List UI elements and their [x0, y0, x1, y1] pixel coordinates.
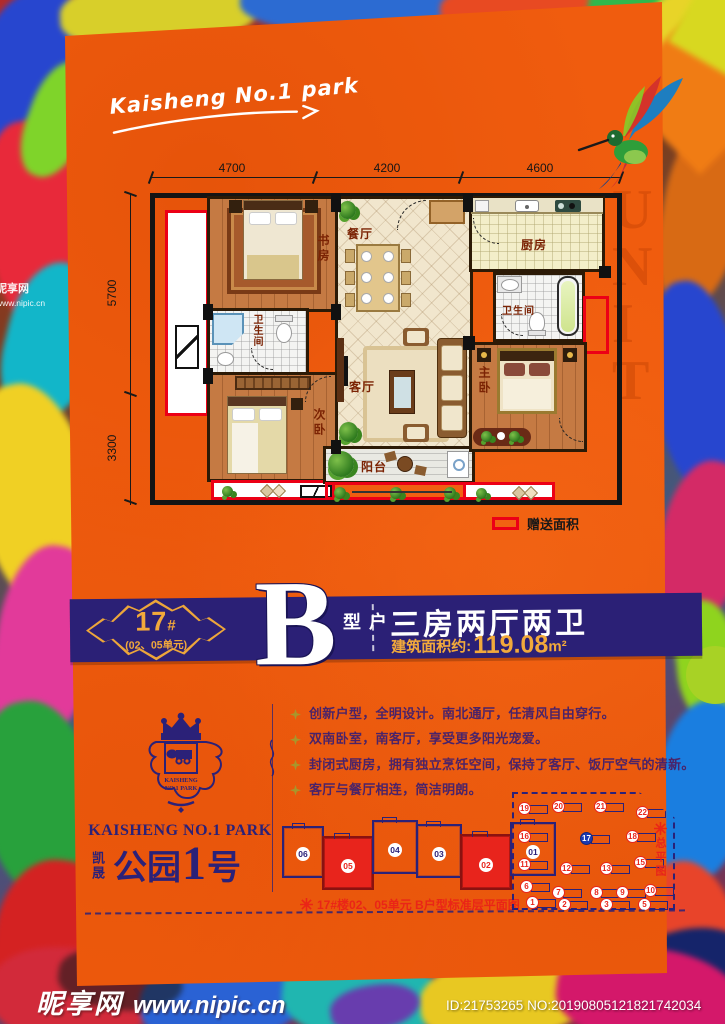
blanket	[247, 255, 299, 279]
hummingbird-icon	[573, 60, 691, 192]
sofa	[437, 338, 467, 438]
site-building-9: 9	[616, 886, 629, 899]
site-building-outline	[529, 833, 548, 842]
unit-number: 03	[432, 847, 446, 861]
coffee-table	[389, 370, 415, 414]
nightstand	[305, 200, 318, 213]
toilet-tank	[528, 330, 546, 336]
room-study: 书房	[209, 198, 337, 310]
plant	[390, 487, 402, 499]
bottom-watermark: 昵享网 www.nipic.cn	[36, 982, 285, 1021]
unit-banner: 17# (02、05单元) B 户型 三房两厅两卫 建筑面积约: 119.08 …	[70, 593, 703, 663]
toilet-tank	[275, 315, 293, 322]
room-label-study: 书房	[315, 234, 332, 264]
gift-bay-master	[463, 482, 555, 500]
room-label-balcony: 阳台	[361, 458, 387, 475]
dashed-cut-line	[85, 909, 685, 914]
door-arc	[559, 418, 583, 442]
door-arc	[501, 314, 523, 336]
nightstand	[291, 398, 303, 410]
watermark-site-name: 昵享网	[36, 982, 123, 1021]
dim-left-1: 5700	[105, 280, 119, 307]
feature-item: 双南卧室，南客厅，享受更多阳光宠爱。	[288, 731, 708, 747]
balcony-table	[397, 456, 413, 472]
ornament-frame-icon: 17# (02、05单元)	[86, 599, 227, 661]
kitchen-sink	[515, 200, 539, 212]
type-letter: B	[254, 557, 337, 692]
site-plan-label-text: 总平图	[652, 837, 668, 879]
block-number: 17	[135, 606, 167, 636]
site-building-8: 8	[590, 886, 603, 899]
side-watermark: 昵享网 www.nipic.cn	[0, 282, 45, 311]
site-building-10: 10	[644, 884, 657, 897]
dim-top-2: 4200	[374, 161, 401, 175]
site-building-outline	[569, 901, 588, 910]
site-plan-map: 19202122161718111213156789101235	[512, 792, 675, 910]
duvet-fold	[232, 423, 258, 473]
floor-plate-unit-05: 05	[322, 836, 374, 890]
plant	[444, 487, 456, 499]
flower-icon	[654, 822, 667, 835]
unit-note: (02、05单元)	[125, 637, 187, 653]
gift-area-right	[583, 296, 609, 354]
site-building-22: 22	[636, 806, 649, 819]
nightstand	[477, 348, 491, 362]
gift-bay-second-bedroom	[211, 480, 335, 500]
plant	[476, 488, 487, 499]
site-building-1: 1	[526, 896, 539, 909]
room-label-bath-left: 卫生间	[249, 314, 264, 347]
brand-cn-word: 公园	[113, 851, 181, 885]
site-building-outline	[611, 865, 630, 874]
floor-plate-unit-02: 02	[460, 834, 512, 890]
dim-top-1: 4700	[219, 161, 246, 175]
poster-canvas: Kaisheng No.1 park UNIT 4700 420	[0, 0, 725, 1024]
site-building-outline	[605, 803, 624, 812]
fridge	[475, 200, 489, 212]
bed	[243, 200, 303, 280]
crest-text-1: KAISHENG	[164, 777, 198, 784]
room-bath-left: 卫生间	[209, 310, 307, 374]
dim-left-2: 3300	[105, 435, 119, 462]
brand-crest-icon: KAISHENG NO.1 PARK	[134, 710, 228, 818]
site-building-16: 16	[518, 830, 531, 843]
pillow	[249, 212, 271, 225]
site-building-12: 12	[560, 862, 573, 875]
plant	[334, 487, 346, 499]
room-balcony: 阳台	[325, 448, 473, 482]
brand-cn-prefix: 凯晟	[88, 851, 107, 881]
washing-machine	[447, 451, 469, 478]
brand-name-en: KAISHENG NO.1 PARK	[68, 822, 292, 840]
room-dining-living: 餐厅	[337, 198, 471, 448]
decor-diamond	[524, 486, 538, 500]
room-kitchen: 厨房	[471, 198, 603, 270]
diamond-bullet-icon	[290, 734, 301, 745]
site-building-outline	[537, 899, 556, 908]
bed	[497, 348, 557, 414]
entrance-door-arc	[397, 200, 427, 230]
entrance-rug	[429, 200, 465, 224]
site-building-outline	[563, 803, 582, 812]
pillow	[275, 212, 297, 225]
vertical-divider	[272, 704, 273, 892]
sink	[217, 352, 234, 366]
stair-flue-symbol	[175, 325, 199, 369]
plant	[222, 486, 233, 497]
feature-list: 创新户型，全明设计。南北通厅，任清风自由穿行。 双南卧室，南客厅，享受更多阳光宠…	[288, 706, 708, 807]
dining-table	[356, 244, 400, 312]
type-label: 户型	[338, 612, 390, 660]
room-label-kitchen: 厨房	[521, 236, 547, 253]
headboard	[244, 201, 302, 210]
block-hash: #	[167, 617, 177, 634]
floor-plate-unit-06: 06	[282, 826, 324, 878]
room-label-master-bedroom: 主卧	[476, 366, 493, 396]
shower	[212, 313, 244, 345]
site-building-outline	[531, 883, 550, 892]
railing	[352, 491, 452, 493]
nightstand	[229, 200, 242, 213]
watermark-id: ID:21753265 NO:20190805121821742034	[446, 998, 701, 1013]
bed	[227, 396, 287, 474]
armchair	[403, 328, 429, 346]
dimension-line-left: 5700 3300	[118, 193, 138, 505]
site-building-21: 21	[594, 800, 607, 813]
tv-cabinet	[337, 338, 344, 402]
feature-item: 客厅与餐厅相连，简洁明朗。	[288, 782, 708, 798]
room-master-bedroom: 主卧	[471, 344, 585, 450]
site-building-13: 13	[600, 862, 613, 875]
door-arc	[251, 348, 273, 370]
area-unit: m²	[548, 638, 567, 657]
site-building-11: 11	[518, 858, 531, 871]
site-building-outline	[563, 889, 582, 898]
site-building-outline	[529, 861, 548, 870]
bathtub	[557, 276, 579, 336]
area-line: 建筑面积约: 119.08 m²	[391, 632, 567, 659]
plant	[328, 451, 354, 477]
pillow	[232, 408, 255, 421]
wardrobe	[235, 376, 311, 390]
divider-ornament-icon	[265, 738, 279, 778]
diamond-bullet-icon	[290, 785, 301, 796]
floor-plate-unit-04: 04	[372, 820, 418, 874]
pillow	[259, 408, 282, 421]
crest-text-2: NO.1 PARK	[165, 785, 198, 792]
decor-diamond	[272, 484, 286, 498]
dim-top-3: 4600	[527, 161, 554, 175]
flower-icon	[300, 898, 313, 911]
room-label-dining: 餐厅	[347, 225, 373, 242]
armchair	[403, 424, 429, 442]
nightstand	[563, 348, 577, 362]
handwritten-title: Kaisheng No.1 park	[109, 73, 362, 137]
headboard	[228, 397, 286, 406]
stool	[414, 465, 427, 476]
dresser-plants	[473, 428, 531, 446]
floor-plate-unit-03: 03	[416, 824, 462, 878]
dimension-line-top: 4700 4200 4600	[150, 163, 622, 183]
site-building-19: 19	[518, 802, 531, 815]
diamond-bullet-icon	[290, 760, 301, 771]
watermark-url: www.nipic.cn	[133, 992, 285, 1020]
site-building-outline	[529, 805, 548, 814]
legend-gift-area: 赠送面积	[492, 514, 579, 533]
site-building-outline	[591, 835, 610, 844]
site-building-outline	[611, 901, 630, 910]
tv	[344, 356, 348, 386]
toilet	[276, 323, 292, 343]
stove	[555, 200, 581, 212]
feature-item: 创新户型，全明设计。南北通厅，任清风自由穿行。	[288, 706, 708, 722]
brand-name-cn: 凯晟 公园 1 号	[88, 844, 241, 885]
room-label-second-bedroom: 次卧	[311, 408, 328, 438]
room-second-bedroom: 次卧	[209, 374, 337, 480]
unit-number: 02	[479, 858, 493, 872]
room-label-living: 客厅	[349, 378, 375, 395]
site-building-outline	[571, 865, 590, 874]
diamond-bullet-icon	[290, 709, 301, 720]
site-building-outline	[655, 887, 674, 896]
legend-label: 赠送面积	[527, 514, 579, 533]
plant	[339, 201, 356, 219]
site-building-outline	[647, 809, 666, 818]
site-building-17: 17	[580, 832, 593, 845]
brand-cn-suffix: 号	[207, 851, 241, 885]
door-arc	[473, 218, 499, 244]
area-label: 建筑面积约:	[391, 635, 471, 659]
unit-number: 06	[296, 847, 310, 861]
unit-number: 04	[388, 843, 402, 857]
site-building-18: 18	[626, 830, 639, 843]
room-bath-right: 卫生间	[495, 274, 583, 340]
gift-balcony-strip	[325, 482, 473, 500]
site-building-6: 6	[520, 880, 533, 893]
legend-red-box-icon	[492, 517, 519, 530]
brand-cn-number: 1	[182, 844, 206, 885]
unit-number: 05	[341, 859, 355, 873]
dining-set	[345, 244, 411, 314]
feature-item: 封闭式厨房，拥有独立烹饪空间，保持了客厅、饭厅空气的清新。	[288, 757, 708, 773]
area-value: 119.08	[473, 632, 548, 658]
vanity	[497, 276, 522, 293]
plant	[339, 422, 358, 442]
stool	[384, 451, 397, 463]
site-building-15: 15	[634, 856, 647, 869]
floor-plan: 书房 卫生间 次卧	[150, 193, 622, 505]
site-building-20: 20	[552, 800, 565, 813]
site-plan-label: 总平图	[652, 822, 668, 879]
